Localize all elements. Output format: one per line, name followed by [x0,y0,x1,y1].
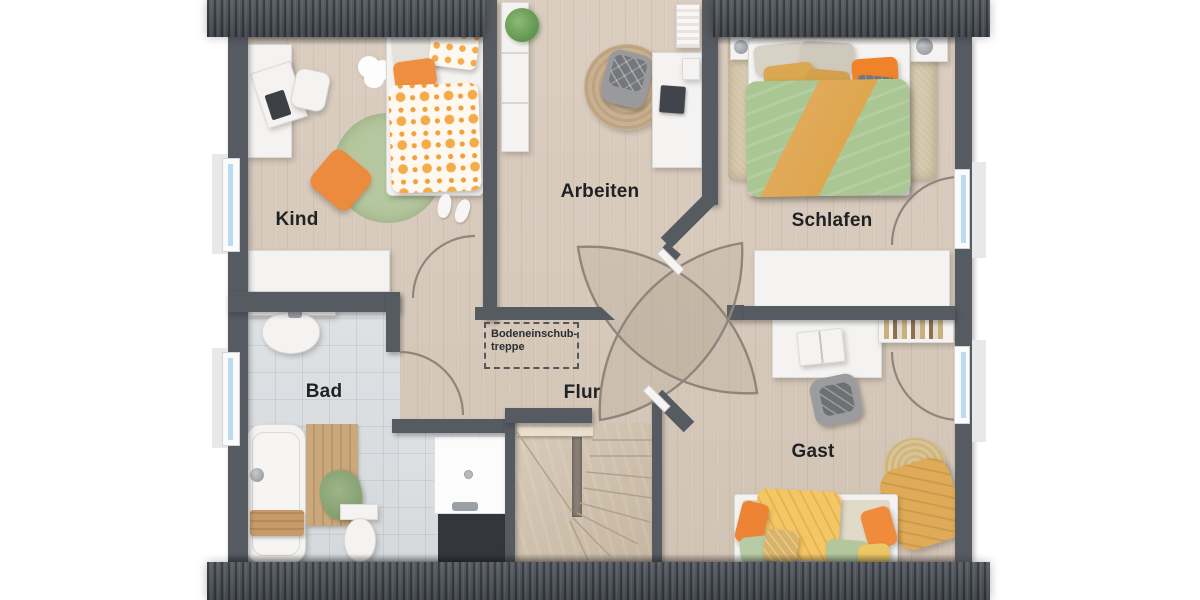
room-label-flur: Flur [564,382,601,404]
staircase-newel-void [572,437,582,517]
wall-schlafen-gast [744,306,955,320]
roof-shadow-top-left [248,37,483,45]
roof-shadow-bottom [228,554,955,562]
roof-top-right [713,0,990,37]
wall-bad-east [386,292,400,352]
bad-shower-faucet-icon [452,502,478,511]
bad-tub-faucet-icon [250,468,264,482]
staircase-landing-edge [517,427,593,436]
wall-stair-west [505,408,515,562]
arbeiten-laptop-icon [659,85,686,114]
arbeiten-books-stack [676,4,700,48]
window-sill-gast [972,340,986,442]
window-gast-glass [961,352,966,418]
window-kind-glass [228,164,233,246]
kind-sideboard [248,250,390,292]
wall-nook-north [392,419,513,433]
roof-bottom [207,562,990,600]
schlafen-sideboard [754,250,950,307]
gast-open-book-icon [796,328,845,367]
wall-stair-east [652,395,662,562]
room-label-gast: Gast [791,441,834,463]
room-label-bad: Bad [306,381,343,403]
roof-shadow-top-right [718,37,955,45]
wall-stub-east [727,305,744,320]
schlafen-duvet [745,79,911,198]
arbeiten-books-small [682,58,700,80]
roof-top-left [207,0,485,37]
bad-washbasin [262,312,320,354]
attic-hatch-annotation-line1: Bodeneinschub- [491,328,577,341]
wall-kind-bad [228,292,400,312]
room-label-arbeiten: Arbeiten [561,181,640,203]
attic-hatch-annotation: Bodeneinschub- treppe [484,322,579,369]
window-bad-glass [228,358,233,440]
window-sill-schlafen [972,162,986,258]
bad-bath-caddy [250,510,304,536]
wall-exterior-right [955,37,972,562]
window-schlafen-glass [961,175,966,243]
room-label-kind: Kind [275,209,318,231]
room-label-schlafen: Schlafen [792,210,873,232]
bad-shower-drain-icon [464,470,473,479]
wall-stair-north [505,408,592,423]
kind-cloud-rug-lobe2 [364,70,384,88]
staircase [515,423,652,562]
wall-kind-arbeiten [483,0,497,320]
arbeiten-plant-icon [505,8,539,42]
attic-hatch-annotation-line2: treppe [491,341,577,354]
floorplan-canvas: Kind Arbeiten Schlafen Bad Flur Gast Bod… [0,0,1200,600]
bad-bathtub-inner [252,432,300,556]
kind-duvet-polkadot [388,82,482,193]
gast-books-row [884,319,946,339]
